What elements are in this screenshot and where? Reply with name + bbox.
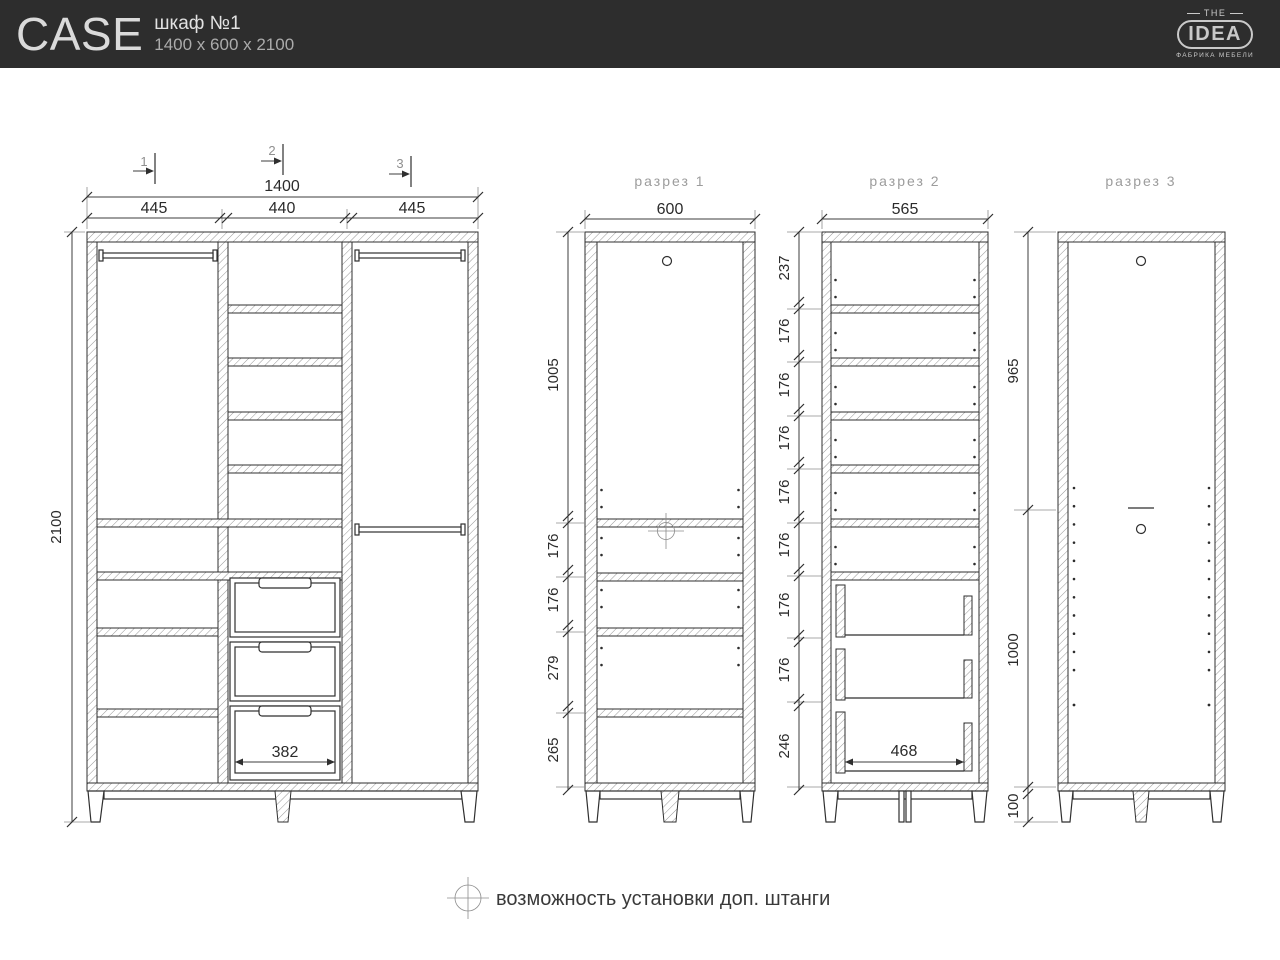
- optional-rod-mark: [648, 513, 684, 549]
- cut-marker-1-label: 1: [140, 154, 147, 169]
- section-2-chain: 237 176 176 176 176 176 176 176 246: [776, 227, 822, 795]
- chain-value: 176: [776, 372, 793, 397]
- dim-height: 2100: [48, 510, 65, 543]
- section-2-base: [823, 791, 987, 822]
- cut-marker-3-label: 3: [396, 156, 403, 171]
- drawer-2: [230, 642, 340, 701]
- chain-value: 176: [545, 587, 562, 612]
- drawing-canvas: 1 2 3 1400 445 440 445: [0, 0, 1280, 960]
- drawer-section-2: [836, 649, 972, 700]
- rod-hole: [1137, 257, 1146, 266]
- hanging-rod-right-lower: [355, 524, 465, 535]
- dim-col-mid: 440: [269, 200, 296, 217]
- section-3-title: разрез 3: [1105, 173, 1176, 189]
- front-top-dimensions: 1400 445 440 445: [82, 178, 483, 229]
- section-1-depth: 600: [657, 201, 684, 218]
- chain-value: 1005: [545, 358, 562, 391]
- front-base: [88, 791, 477, 822]
- section-1-chain: 1005 176 176 279 265: [545, 227, 585, 795]
- drawer-3: 382: [230, 706, 340, 780]
- front-view: 1 2 3 1400 445 440 445: [48, 143, 483, 827]
- leg: [461, 791, 477, 822]
- section-1-title: разрез 1: [634, 173, 705, 189]
- front-cabinet: 382: [87, 232, 478, 822]
- rod-hole: [663, 257, 672, 266]
- leg: [275, 791, 291, 822]
- leg: [88, 791, 104, 822]
- drawing-sheet: CASE шкаф №1 1400 x 600 x 2100 THE IDEA …: [0, 0, 1280, 960]
- dim-col-right: 445: [399, 200, 426, 217]
- dim-drawer-front: 382: [272, 744, 299, 761]
- drawer-1: [230, 578, 340, 637]
- top-panel: [87, 232, 478, 242]
- section-3-chain: 965 1000 100: [1005, 227, 1058, 827]
- chain-value: 100: [1005, 793, 1022, 818]
- pin-holes: [1073, 488, 1211, 706]
- section-1-base: [586, 791, 754, 822]
- chain-value: 176: [776, 479, 793, 504]
- chain-value: 1000: [1005, 633, 1022, 666]
- section-3-cabinet: [1058, 232, 1225, 822]
- chain-value: 176: [776, 532, 793, 557]
- section-2-title: разрез 2: [869, 173, 940, 189]
- chain-value: 246: [776, 733, 793, 758]
- dim-drawer-depth: 468: [891, 743, 918, 760]
- footnote: возможность установки доп. штанги: [447, 877, 830, 919]
- section-3-base: [1059, 791, 1224, 822]
- cut-marker-2-label: 2: [268, 143, 275, 158]
- chain-value: 176: [776, 592, 793, 617]
- chain-value: 265: [545, 737, 562, 762]
- dim-total-width: 1400: [264, 178, 300, 195]
- dim-col-left: 445: [141, 200, 168, 217]
- chain-value: 965: [1005, 358, 1022, 383]
- hanging-rod-right-top: [355, 250, 465, 261]
- right-side-panel: [468, 242, 478, 783]
- chain-value: 176: [776, 657, 793, 682]
- drawer-section-3: 468: [836, 712, 972, 773]
- partition-left: [218, 242, 228, 783]
- section-1-cabinet: [585, 232, 755, 822]
- bottom-panel: [87, 783, 478, 791]
- chain-value: 176: [545, 533, 562, 558]
- chain-value: 176: [776, 425, 793, 450]
- section-view-1: разрез 1 600: [545, 173, 760, 822]
- front-height-dimension: 2100: [48, 227, 90, 827]
- section-2-depth: 565: [892, 201, 919, 218]
- chain-value: 279: [545, 655, 562, 680]
- section-2-cabinet: 468: [822, 232, 988, 822]
- left-side-panel: [87, 242, 97, 783]
- section-view-2: разрез 2 565: [776, 173, 993, 822]
- chain-value: 176: [776, 318, 793, 343]
- chain-value: 237: [776, 255, 793, 280]
- partition-right: [342, 242, 352, 783]
- footnote-text: возможность установки доп. штанги: [496, 888, 830, 910]
- optional-rod-hole: [1137, 525, 1146, 534]
- section-view-3: разрез 3: [1005, 173, 1225, 827]
- drawer-section-1: [836, 585, 972, 637]
- crosshair-icon: [447, 877, 489, 919]
- hanging-rod-left: [99, 250, 217, 261]
